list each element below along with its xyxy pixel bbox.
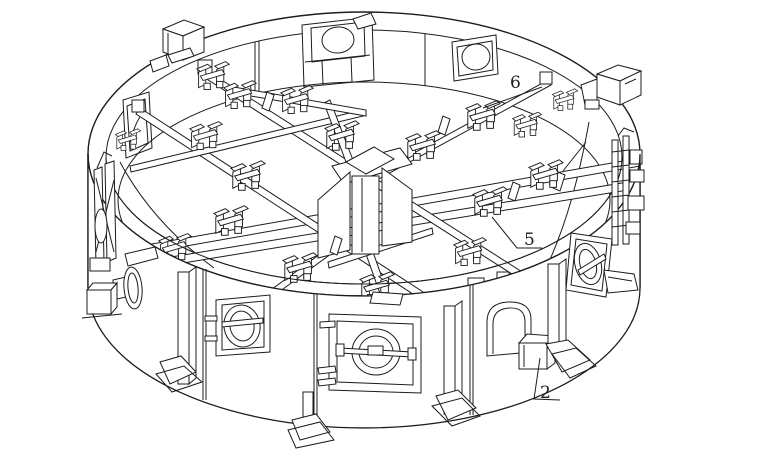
side-box-front	[87, 290, 111, 314]
rim-tab	[370, 292, 403, 305]
clamp	[552, 89, 577, 111]
callout-6-label: 6	[510, 73, 521, 93]
callout-2-label: 2	[540, 383, 551, 403]
callout-5-label: 5	[524, 230, 535, 250]
hinge-pin	[318, 366, 336, 374]
window-right	[452, 35, 498, 81]
wing-bracket	[604, 270, 638, 293]
hinge-pin	[318, 378, 336, 386]
rim-tab-top-left	[150, 55, 169, 72]
hub-post	[352, 176, 379, 254]
hatch-center	[318, 314, 421, 393]
box-front	[519, 343, 547, 369]
drawing-page: 6 5 2	[0, 0, 760, 461]
hinge-pin	[320, 321, 335, 328]
clamp	[513, 112, 542, 137]
top-left-box	[163, 20, 204, 63]
technical-drawing: 6 5 2	[0, 0, 760, 461]
hub-right-gusset	[382, 168, 412, 246]
center-hub	[318, 147, 412, 258]
hatch-right	[566, 233, 612, 297]
